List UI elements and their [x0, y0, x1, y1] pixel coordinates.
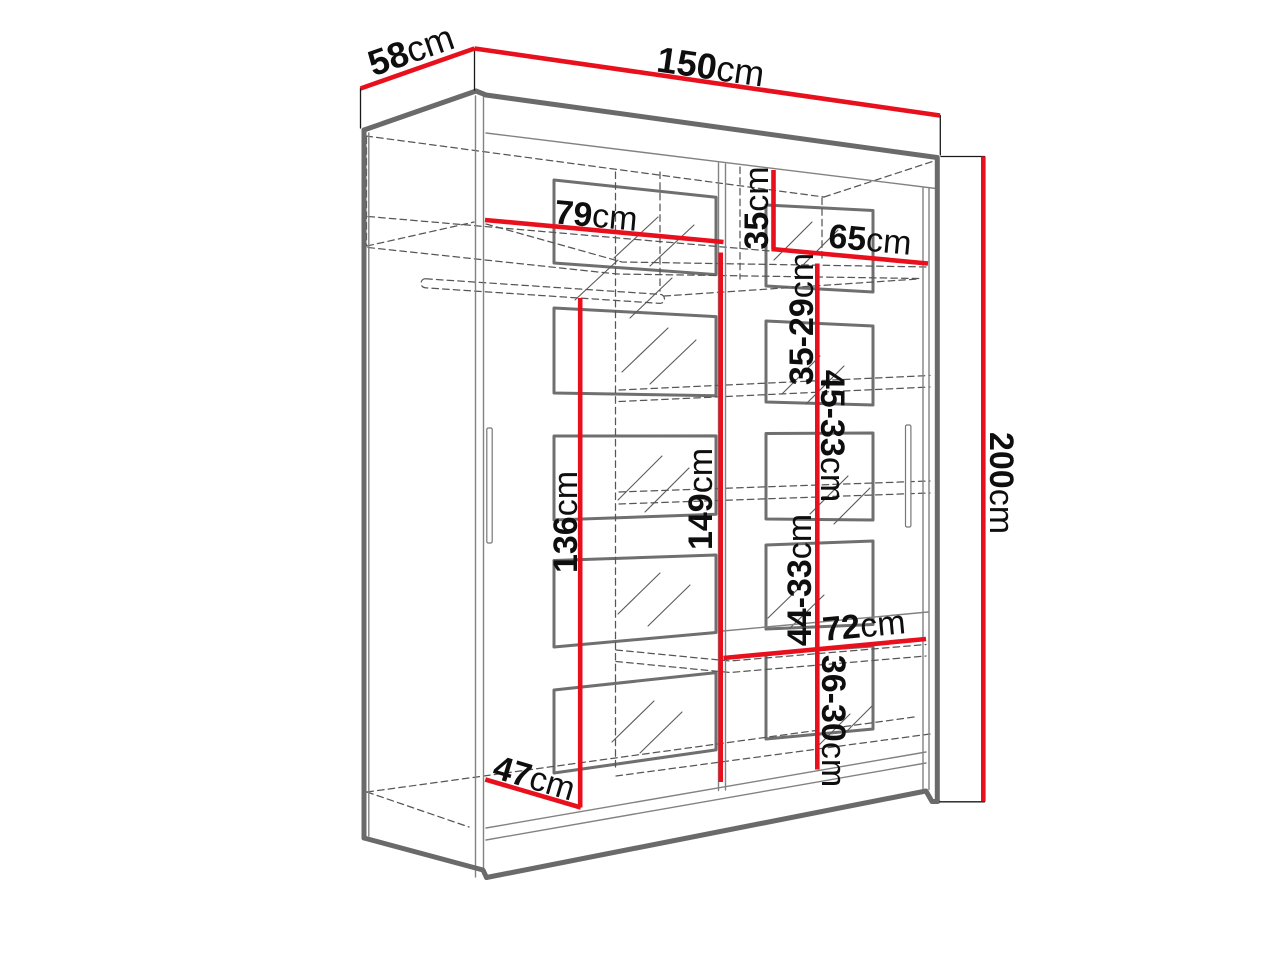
svg-text:79cm: 79cm	[553, 193, 639, 238]
svg-text:35cm: 35cm	[738, 166, 776, 249]
svg-text:72cm: 72cm	[821, 603, 907, 649]
svg-text:36-30cm: 36-30cm	[814, 655, 852, 787]
svg-text:45-33cm: 45-33cm	[813, 370, 851, 502]
svg-text:136cm: 136cm	[547, 471, 585, 573]
svg-text:200cm: 200cm	[982, 432, 1020, 534]
svg-text:65cm: 65cm	[827, 217, 913, 262]
svg-text:44-33cm: 44-33cm	[781, 514, 819, 646]
svg-text:35-29cm: 35-29cm	[783, 253, 821, 385]
svg-text:149cm: 149cm	[682, 448, 720, 550]
